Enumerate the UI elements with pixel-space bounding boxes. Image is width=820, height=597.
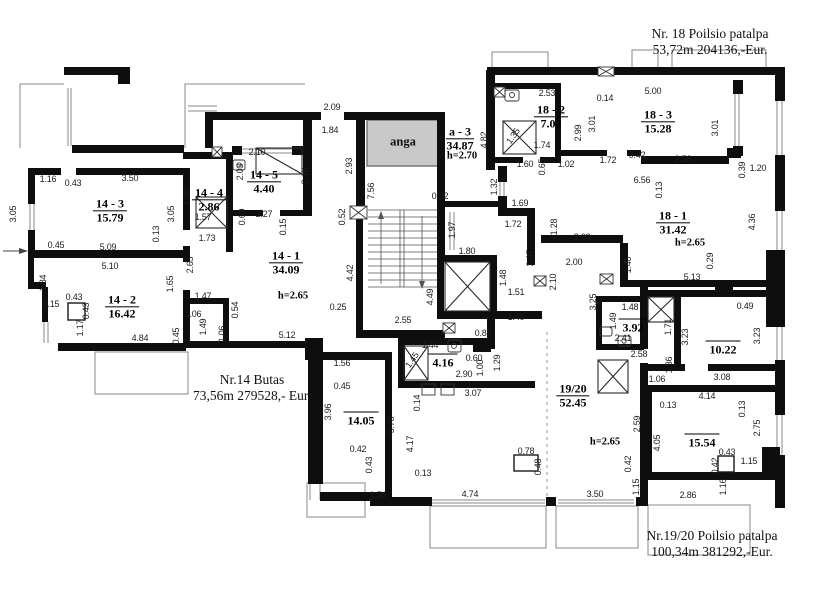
room-area: 7.02 <box>534 118 568 131</box>
dimension-label: 1.74 <box>534 140 551 150</box>
dimension-label: 3.01 <box>710 120 720 137</box>
room-number: 14 - 1 <box>269 249 303 263</box>
dimension-label: 1.60 <box>517 159 534 169</box>
dimension-label: 2.18 <box>300 168 310 185</box>
dimension-label: 0.13 <box>415 468 432 478</box>
room-number: 14 - 5 <box>247 168 281 182</box>
dimension-label: 1.32 <box>489 179 499 196</box>
annotation-nr18: Nr. 18 Poilsio patalpa 53,72m 204136,-Eu… <box>652 26 769 58</box>
dimension-label: 3.01 <box>587 116 597 133</box>
room-area: 16.42 <box>105 308 139 321</box>
dimension-label: 1.20 <box>750 163 767 173</box>
room-area-label: 10.22 <box>706 341 741 358</box>
ceiling-height-label: h=2.70 <box>447 151 477 162</box>
dimension-label: 0.48 <box>533 459 543 476</box>
dimension-label: 4.74 <box>462 489 479 499</box>
annotation-nr14-line1: Nr.14 Butas <box>193 372 311 388</box>
dimension-label: 1.54 <box>370 490 387 500</box>
dimension-label: 3.05 <box>166 206 176 223</box>
dimension-label: 2.10 <box>249 147 266 157</box>
dimension-label: 1.69 <box>512 198 529 208</box>
room-label: 18 - 27.02 <box>534 103 568 130</box>
dimension-label: 1.35 <box>504 126 522 145</box>
annotation-nr1920-line2: 100,34m 381292,-Eur. <box>647 544 778 560</box>
dimension-label: 3.50 <box>122 173 139 183</box>
anga-label: anga <box>390 135 416 150</box>
room-label: 19/2052.45 <box>556 382 589 409</box>
room-area: 34.09 <box>269 264 303 277</box>
dimension-label: 2.58 <box>675 154 692 164</box>
room-number: 18 - 2 <box>534 103 568 117</box>
dimension-label: 0.43 <box>364 457 374 474</box>
dimension-label: 1.49 <box>198 319 208 336</box>
dimension-label: 1.80 <box>459 246 476 256</box>
dimension-label: 6.56 <box>634 175 651 185</box>
room-label: 14 - 315.79 <box>93 197 127 224</box>
dimension-label: 2.27 <box>256 209 273 219</box>
room-number: 19/20 <box>556 382 589 396</box>
dimension-label: 1.73 <box>199 233 216 243</box>
dimension-label: 0.43 <box>65 178 82 188</box>
room-label: 14 - 42.86 <box>192 186 226 213</box>
annotation-nr14: Nr.14 Butas 73,56m 279528,- Eur. <box>193 372 311 404</box>
dimension-label: 1.15 <box>741 456 758 466</box>
dimension-label: 0.42 <box>623 456 633 473</box>
ceiling-height-label: h=2.65 <box>675 238 705 249</box>
dimension-label: 0.13 <box>654 182 664 199</box>
dimension-label: 1.02 <box>558 159 575 169</box>
room-number: 14 - 2 <box>105 293 139 307</box>
dimension-label: 1.40 <box>508 312 525 322</box>
dimension-label: 0.22 <box>432 191 449 201</box>
dimension-label: 0.43 <box>66 292 83 302</box>
dimension-label: 2.93 <box>344 158 354 175</box>
dimension-label: 5.09 <box>100 242 117 252</box>
ceiling-height-label: h=2.65 <box>590 437 620 448</box>
dimension-label: 1.06 <box>649 374 666 384</box>
dimension-label: 1.15 <box>43 299 60 309</box>
dimension-label: 2.59 <box>632 416 642 433</box>
dimension-label: 4.36 <box>747 214 757 231</box>
dimension-label: 2.09 <box>324 102 341 112</box>
dimension-label: 3.08 <box>714 372 731 382</box>
dimension-label: 0.45 <box>171 328 181 345</box>
dimension-label: 2.10 <box>548 274 558 291</box>
dimension-label: 0.42 <box>350 444 367 454</box>
dimension-label: 1.97 <box>447 222 457 239</box>
dimension-label: 1.44 <box>422 340 439 350</box>
room-label: a - 334.87 <box>446 125 474 152</box>
room-label: 14 - 216.42 <box>105 293 139 320</box>
annotation-nr18-line1: Nr. 18 Poilsio patalpa <box>652 26 769 42</box>
dimension-label: 0.45 <box>334 381 351 391</box>
room-area-label: 4.16 <box>429 354 458 371</box>
dimension-label: 0.87 <box>475 328 492 338</box>
dimension-label: 1.72 <box>505 219 522 229</box>
dimension-label: 4.42 <box>345 265 355 282</box>
dimension-label: 5.13 <box>684 272 701 282</box>
annotation-nr1920: Nr.19/20 Poilsio patalpa 100,34m 381292,… <box>647 528 778 560</box>
dimension-label: 0.52 <box>337 209 347 226</box>
dimension-label: 0.25 <box>330 302 347 312</box>
dimension-label: 2.65 <box>185 257 195 274</box>
dimension-label: 2.90 <box>456 369 473 379</box>
dimension-label: 0.43 <box>81 303 91 320</box>
labels-layer: 2.091.842.937.560.220.521.971.804.420.25… <box>0 0 820 597</box>
dimension-label: 3.23 <box>680 329 690 346</box>
dimension-label: 0.42 <box>710 458 720 475</box>
dimension-label: 0.14 <box>412 395 422 412</box>
dimension-label: 1.17 <box>75 320 85 337</box>
dimension-label: 5.78 <box>386 417 396 434</box>
room-number: 14 - 3 <box>93 197 127 211</box>
dimension-label: 3.25 <box>588 294 598 311</box>
annotation-nr14-line2: 73,56m 279528,- Eur. <box>193 388 311 404</box>
dimension-label: 1.56 <box>334 358 351 368</box>
dimension-label: 1.40 <box>623 257 633 274</box>
dimension-label: 1.47 <box>195 291 212 301</box>
dimension-label: 1.65 <box>165 276 175 293</box>
dimension-label: 4.14 <box>699 391 716 401</box>
dimension-label: 2.00 <box>566 257 583 267</box>
room-label: 14 - 134.09 <box>269 249 303 276</box>
dimension-label: 2.97 <box>525 250 535 267</box>
dimension-label: 0.13 <box>660 400 677 410</box>
dimension-label: 0.14 <box>597 93 614 103</box>
dimension-label: 1.92 <box>182 189 192 206</box>
dimension-label: 1.06 <box>217 326 227 343</box>
dimension-label: 4.82 <box>479 132 489 149</box>
dimension-label: 2.86 <box>680 490 697 500</box>
dimension-label: 0.15 <box>278 219 288 236</box>
room-label: 14 - 54.40 <box>247 168 281 195</box>
dimension-label: 0.49 <box>737 301 754 311</box>
dimension-label: 2.75 <box>752 420 762 437</box>
room-area: 10.22 <box>706 341 741 358</box>
dimension-label: 3.23 <box>752 328 762 345</box>
room-area-label: 3.92 <box>619 319 648 336</box>
room-area: 15.28 <box>641 123 675 136</box>
dimension-label: 2.55 <box>395 315 412 325</box>
dimension-label: 1.36 <box>664 357 674 374</box>
dimension-label: 1.28 <box>549 219 559 236</box>
ceiling-height-label: h=2.65 <box>278 291 308 302</box>
dimension-label: 0.54 <box>230 302 240 319</box>
room-area: 4.40 <box>247 183 281 196</box>
room-area: 3.92 <box>619 319 648 336</box>
room-area: 14.05 <box>344 412 379 429</box>
room-label: 18 - 315.28 <box>641 108 675 135</box>
dimension-label: 1.00 <box>475 360 485 377</box>
dimension-label: 0.69 <box>237 209 247 226</box>
dimension-label: 4.17 <box>405 436 415 453</box>
dimension-label: 1.71 <box>663 319 673 336</box>
dimension-label: 3.50 <box>587 489 604 499</box>
dimension-label: 0.39 <box>737 162 747 179</box>
room-number: 14 - 4 <box>192 186 226 200</box>
dimension-label: 1.84 <box>322 125 339 135</box>
room-number: 18 - 1 <box>656 209 690 223</box>
dimension-label: 5.10 <box>102 261 119 271</box>
dimension-label: 3.07 <box>465 388 482 398</box>
dimension-label: 1.45 <box>403 350 421 369</box>
dimension-label: 1.29 <box>492 355 502 372</box>
dimension-label: 4.49 <box>425 289 435 306</box>
dimension-label: 0.42 <box>629 150 646 160</box>
dimension-label: 1.16 <box>40 174 57 184</box>
room-area: 52.45 <box>556 397 589 410</box>
dimension-label: 2.03 <box>235 164 245 181</box>
dimension-label: 0.13 <box>151 226 161 243</box>
dimension-label: 0.29 <box>705 253 715 270</box>
dimension-label: 3.96 <box>323 404 333 421</box>
dimension-label: 7.56 <box>366 183 376 200</box>
dimension-label: 1.51 <box>508 287 525 297</box>
dimension-label: 4.05 <box>652 435 662 452</box>
room-label: 18 - 131.42 <box>656 209 690 236</box>
dimension-label: 1.48 <box>622 302 639 312</box>
dimension-label: 2.53 <box>539 88 556 98</box>
dimension-label: 0.45 <box>48 240 65 250</box>
room-number: 18 - 3 <box>641 108 675 122</box>
dimension-label: 1.72 <box>600 155 617 165</box>
floor-plan: 2.091.842.937.560.220.521.971.804.420.25… <box>0 0 820 597</box>
dimension-label: 0.65 <box>537 159 547 176</box>
dimension-label: 0.78 <box>518 446 535 456</box>
room-area-label: 14.05 <box>344 412 379 429</box>
dimension-label: 4.84 <box>132 333 149 343</box>
room-number: a - 3 <box>446 125 474 139</box>
dimension-label: 2.99 <box>573 125 583 142</box>
dimension-label: 1.84 <box>38 275 48 292</box>
dimension-label: 3.05 <box>8 206 18 223</box>
room-area: 4.16 <box>429 354 458 371</box>
room-area: 2.86 <box>192 201 226 214</box>
dimension-label: 1.15 <box>631 479 641 496</box>
dimension-label: 1.49 <box>608 313 618 330</box>
dimension-label: 1.48 <box>498 270 508 287</box>
dimension-label: 2.63 <box>574 232 591 242</box>
dimension-label: 2.58 <box>631 349 648 359</box>
annotation-nr1920-line1: Nr.19/20 Poilsio patalpa <box>647 528 778 544</box>
annotation-nr18-line2: 53,72m 204136,-Eur. <box>652 42 769 58</box>
dimension-label: 1.16 <box>718 479 728 496</box>
room-area: 31.42 <box>656 224 690 237</box>
dimension-label: 5.12 <box>279 330 296 340</box>
room-area: 15.79 <box>93 212 127 225</box>
dimension-label: 0.13 <box>737 401 747 418</box>
dimension-label: 0.43 <box>719 447 736 457</box>
dimension-label: 5.00 <box>645 86 662 96</box>
room-area-label: 15.54 <box>685 434 720 451</box>
room-area: 15.54 <box>685 434 720 451</box>
